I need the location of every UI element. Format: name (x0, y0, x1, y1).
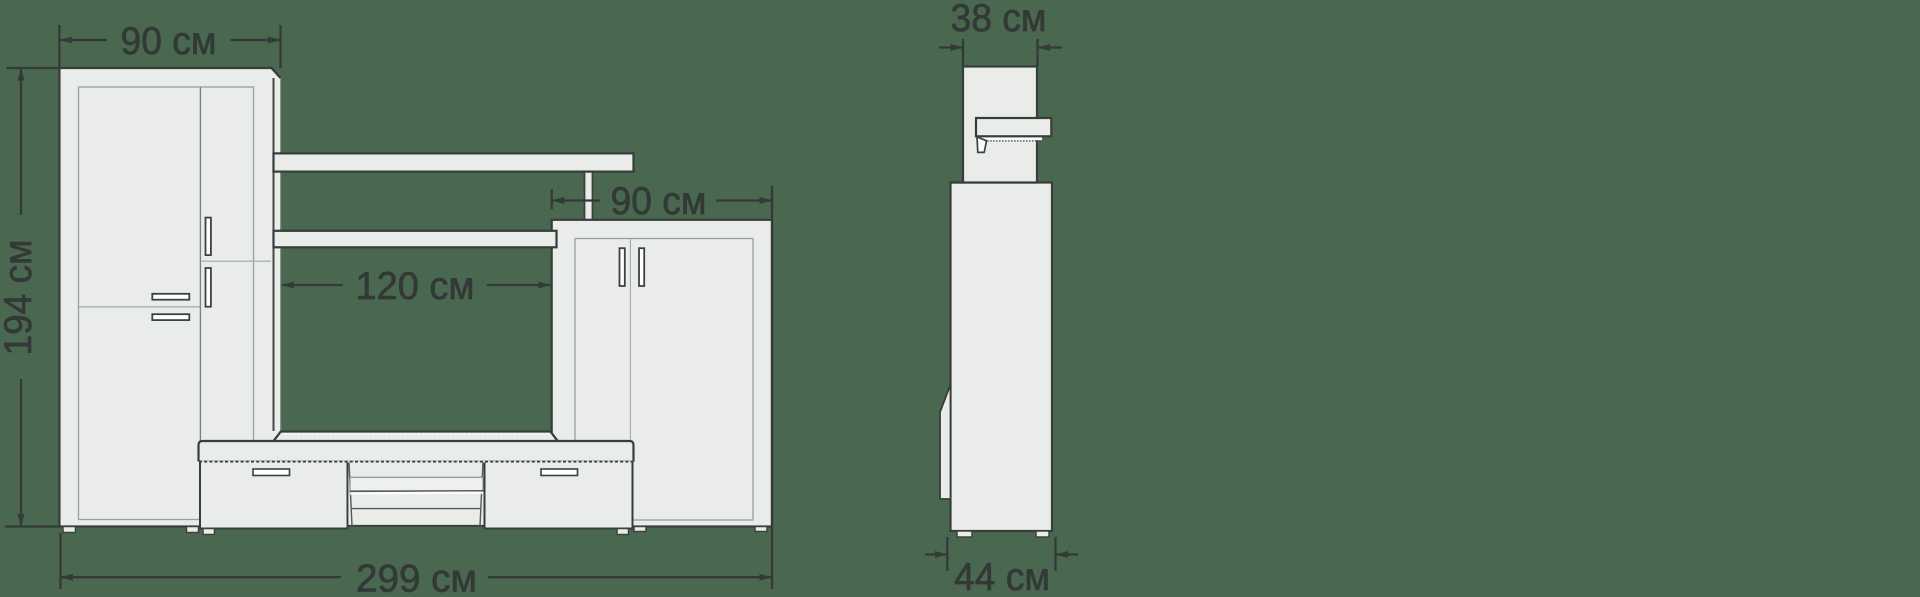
svg-text:194 см: 194 см (0, 240, 40, 356)
svg-text:90 см: 90 см (611, 180, 707, 223)
svg-text:90 см: 90 см (121, 20, 217, 63)
svg-text:120 см: 120 см (356, 265, 475, 308)
svg-text:299 см: 299 см (356, 558, 477, 597)
svg-text:44 см: 44 см (954, 556, 1050, 597)
svg-text:38 см: 38 см (951, 0, 1047, 40)
